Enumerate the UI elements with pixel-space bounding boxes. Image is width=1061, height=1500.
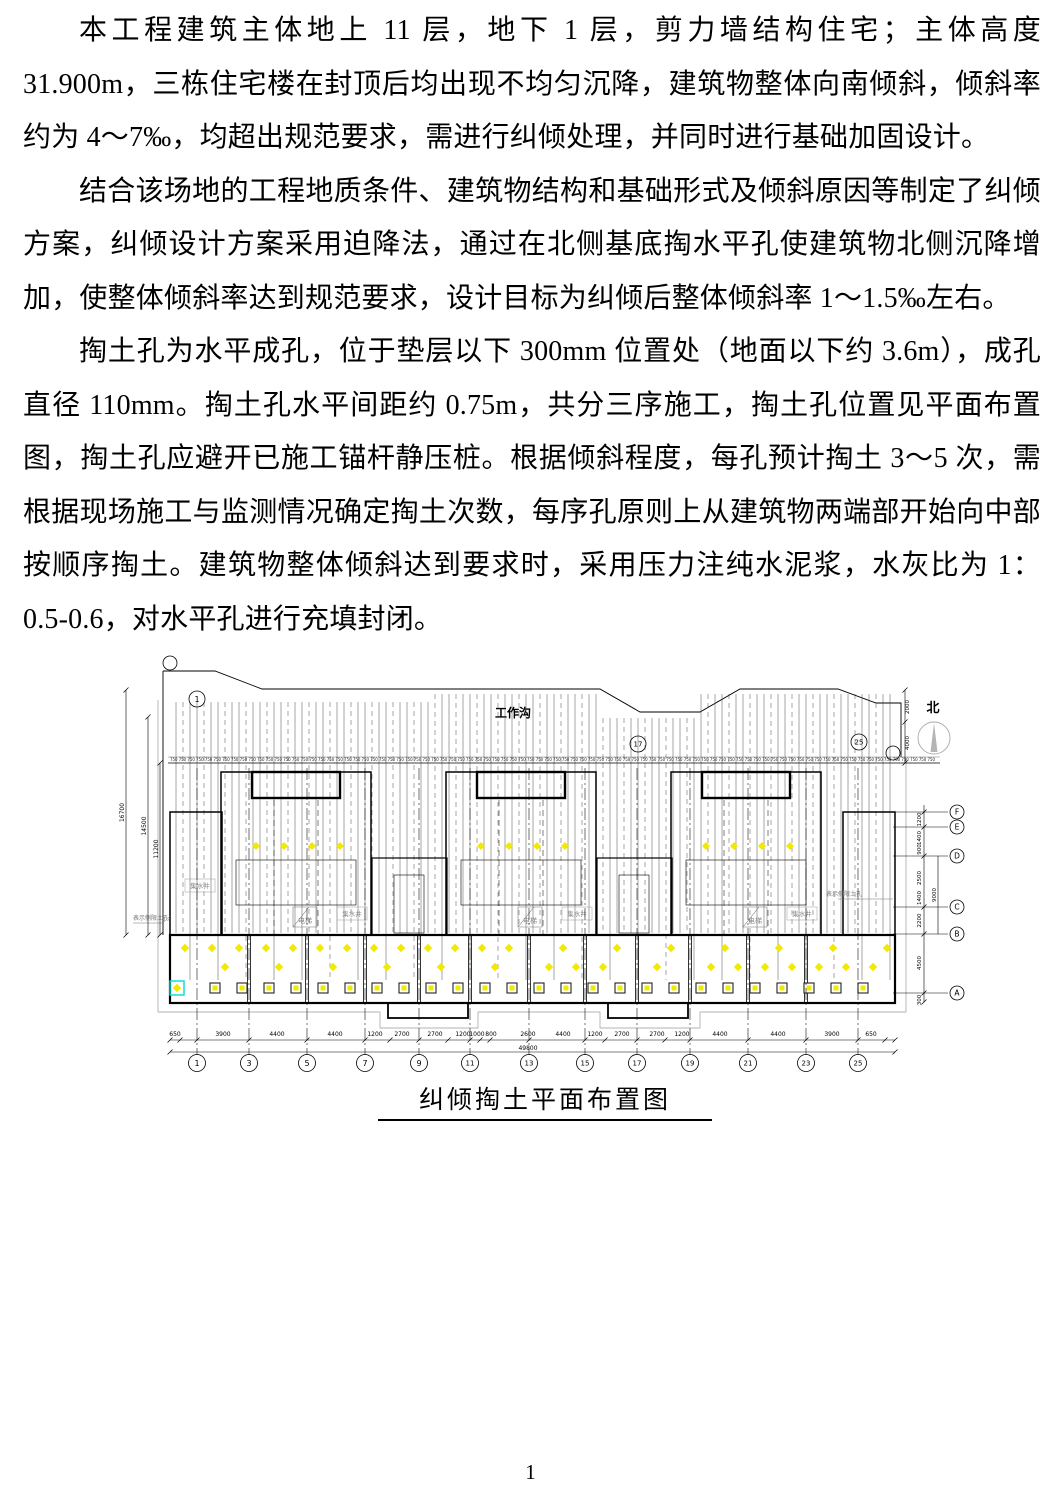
svg-text:5: 5 bbox=[304, 1059, 309, 1068]
document-page: 本工程建筑主体地上 11 层，地下 1 层，剪力墙结构住宅；主体高度 31.90… bbox=[0, 0, 1061, 1500]
svg-text:1200: 1200 bbox=[674, 1031, 689, 1038]
svg-text:2000: 2000 bbox=[905, 700, 911, 714]
svg-text:25: 25 bbox=[855, 739, 864, 747]
paragraph: 掏土孔为水平成孔，位于垫层以下 300mm 位置处（地面以下约 3.6m），成孔… bbox=[23, 325, 1041, 646]
paragraph: 结合该场地的工程地质条件、建筑物结构和基础形式及倾斜原因等制定了纠倾方案，纠倾设… bbox=[23, 165, 1041, 326]
svg-text:49800: 49800 bbox=[518, 1045, 537, 1052]
svg-text:2200: 2200 bbox=[917, 913, 923, 927]
svg-text:2700: 2700 bbox=[427, 1031, 442, 1038]
soil-removal-band bbox=[170, 842, 895, 1018]
svg-text:1000: 1000 bbox=[469, 1031, 484, 1038]
svg-text:表示侧限土孔: 表示侧限土孔 bbox=[826, 890, 862, 898]
svg-text:表示侧限土孔: 表示侧限土孔 bbox=[133, 914, 169, 922]
svg-text:23: 23 bbox=[802, 1060, 811, 1068]
plan-markers: 11725 bbox=[189, 691, 867, 752]
svg-text:650: 650 bbox=[865, 1031, 877, 1038]
svg-text:1200: 1200 bbox=[917, 812, 923, 826]
svg-text:1200: 1200 bbox=[587, 1031, 602, 1038]
leader-notes: 表示侧限土孔表示侧限土孔 bbox=[133, 890, 893, 923]
svg-text:2700: 2700 bbox=[649, 1031, 664, 1038]
svg-text:800: 800 bbox=[485, 1031, 497, 1038]
svg-text:电梯: 电梯 bbox=[748, 916, 762, 925]
svg-text:D: D bbox=[954, 852, 960, 861]
top-right-dimensions: 20004000 bbox=[903, 688, 912, 766]
right-grid-letters: FEDCBA1200140090025001400220045003009000 bbox=[893, 805, 964, 1005]
body-text: 本工程建筑主体地上 11 层，地下 1 层，剪力墙结构住宅；主体高度 31.90… bbox=[23, 4, 1041, 646]
svg-text:14500: 14500 bbox=[141, 816, 148, 835]
svg-text:3: 3 bbox=[246, 1059, 251, 1068]
svg-text:2500: 2500 bbox=[917, 871, 923, 885]
svg-text:4400: 4400 bbox=[770, 1031, 785, 1038]
svg-text:9000: 9000 bbox=[932, 888, 938, 902]
svg-text:3900: 3900 bbox=[215, 1031, 230, 1038]
svg-text:300: 300 bbox=[917, 994, 923, 1005]
svg-text:1400: 1400 bbox=[917, 891, 923, 905]
svg-text:A: A bbox=[954, 989, 960, 998]
svg-text:11: 11 bbox=[466, 1060, 475, 1068]
svg-text:集水井: 集水井 bbox=[567, 909, 587, 918]
svg-text:4400: 4400 bbox=[555, 1031, 570, 1038]
svg-text:集水井: 集水井 bbox=[342, 909, 362, 918]
svg-text:电梯: 电梯 bbox=[523, 916, 537, 925]
svg-text:7: 7 bbox=[362, 1059, 367, 1068]
svg-text:650: 650 bbox=[169, 1031, 181, 1038]
svg-text:21: 21 bbox=[744, 1060, 753, 1068]
svg-text:1: 1 bbox=[194, 1059, 199, 1068]
paragraph: 本工程建筑主体地上 11 层，地下 1 层，剪力墙结构住宅；主体高度 31.90… bbox=[23, 4, 1041, 165]
svg-text:9: 9 bbox=[416, 1059, 421, 1068]
svg-text:4400: 4400 bbox=[269, 1031, 284, 1038]
svg-text:B: B bbox=[954, 930, 959, 939]
svg-text:25: 25 bbox=[854, 1060, 863, 1068]
svg-text:17: 17 bbox=[633, 1060, 642, 1068]
svg-text:集水井: 集水井 bbox=[190, 881, 210, 890]
svg-text:F: F bbox=[955, 808, 959, 817]
left-dimensions: 112001450016700 bbox=[119, 688, 163, 938]
bottom-dimensions: 6503900440044001200270027001200100080026… bbox=[168, 1031, 898, 1055]
page-number: 1 bbox=[0, 1460, 1061, 1485]
svg-text:1: 1 bbox=[194, 695, 199, 704]
svg-text:1200: 1200 bbox=[367, 1031, 382, 1038]
svg-text:11200: 11200 bbox=[153, 839, 160, 858]
svg-text:1400: 1400 bbox=[917, 831, 923, 845]
north-compass-icon: 北 bbox=[918, 701, 950, 754]
drill-hole-hatch bbox=[176, 694, 890, 980]
svg-text:2700: 2700 bbox=[394, 1031, 409, 1038]
drawing-title: 纠倾掏土平面布置图 bbox=[378, 1080, 712, 1121]
building-outline bbox=[170, 772, 895, 935]
svg-text:E: E bbox=[955, 823, 960, 832]
svg-text:4500: 4500 bbox=[917, 956, 923, 970]
svg-text:C: C bbox=[954, 903, 959, 912]
svg-text:16700: 16700 bbox=[119, 803, 126, 822]
svg-text:4000: 4000 bbox=[905, 736, 911, 750]
svg-text:2700: 2700 bbox=[614, 1031, 629, 1038]
svg-text:3900: 3900 bbox=[824, 1031, 839, 1038]
svg-text:750 750 750 750 750 750 750 75: 750 750 750 750 750 750 750 750 750 750 … bbox=[170, 757, 935, 762]
svg-text:4400: 4400 bbox=[712, 1031, 727, 1038]
svg-text:电梯: 电梯 bbox=[298, 916, 312, 925]
svg-text:900: 900 bbox=[917, 844, 923, 855]
svg-text:4400: 4400 bbox=[327, 1031, 342, 1038]
svg-text:北: 北 bbox=[926, 701, 939, 716]
svg-text:17: 17 bbox=[634, 741, 643, 749]
svg-text:工作沟: 工作沟 bbox=[495, 705, 531, 720]
trench-outer-boundary bbox=[158, 700, 906, 1028]
svg-text:19: 19 bbox=[686, 1060, 695, 1068]
site-plan-drawing: 工作沟750 750 750 750 750 750 750 750 750 7… bbox=[0, 645, 1061, 1075]
svg-text:15: 15 bbox=[581, 1060, 590, 1068]
svg-text:2600: 2600 bbox=[520, 1031, 535, 1038]
svg-text:集水井: 集水井 bbox=[792, 909, 812, 918]
svg-text:13: 13 bbox=[525, 1060, 534, 1068]
